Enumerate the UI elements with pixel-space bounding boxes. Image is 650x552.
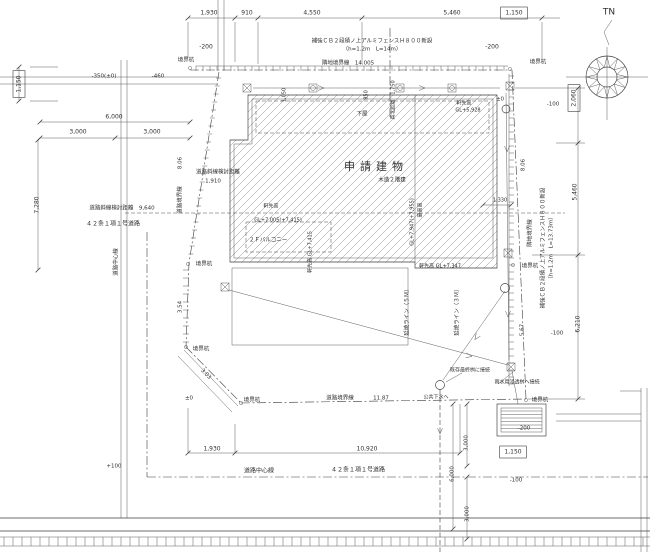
svg-text:1,150: 1,150 (16, 75, 23, 92)
first-floor-outline (232, 268, 408, 345)
svg-text:隣地境界線 14.005: 隣地境界線 14.005 (322, 59, 375, 67)
label-north-tn: TN (602, 8, 615, 18)
label-stake-bottom-right: 境界杭 (532, 396, 549, 404)
svg-text:2,060: 2,060 (571, 89, 578, 106)
svg-text:1,910: 1,910 (205, 179, 221, 185)
svg-text:3.03: 3.03 (199, 368, 212, 381)
svg-text:5,460: 5,460 (572, 183, 579, 200)
labels: TN1,9309104,5505,4601,150-200補強ＣＢ２段積ノ上アル… (13, 7, 615, 522)
label-lvl-right-100a: -100 (547, 102, 560, 108)
svg-text:既存最終桝に接続: 既存最終桝に接続 (450, 367, 490, 374)
label-lvl-bottom-minus100: -100 (510, 478, 523, 484)
svg-text:TN: TN (602, 8, 615, 18)
label-dim-right-5460: 5,460 (572, 183, 579, 200)
label-line-road-bottom: 道路境界線 (326, 394, 354, 402)
svg-text:850: 850 (364, 90, 370, 100)
svg-text:延焼ライン（５Ｍ）: 延焼ライン（５Ｍ） (403, 286, 411, 336)
svg-text:6,210: 6,210 (575, 315, 582, 332)
svg-text:10,920: 10,920 (357, 446, 378, 453)
svg-text:GL+7,947(+7,955): GL+7,947(+7,955) (410, 198, 416, 246)
label-note-setback-1910b: 1,910 (205, 179, 221, 185)
svg-text:±0: ±0 (185, 396, 194, 402)
label-note-eave-7005a: 軒先高 (263, 203, 278, 210)
svg-text:±0: ±0 (496, 97, 505, 103)
svg-text:木造２階建: 木造２階建 (378, 176, 406, 184)
label-note-road-article-bottom: ４２条１項１号道路 (331, 466, 385, 474)
svg-text:公共下水へ: 公共下水へ (423, 394, 448, 401)
svg-text:3,000: 3,000 (465, 506, 471, 522)
svg-text:（h=1.2m L=14m）: （h=1.2m L=14m） (343, 46, 402, 53)
label-lvl-top-right-200: -200 (485, 44, 499, 51)
label-stake-east-mid: 境界杭 (522, 262, 539, 270)
svg-text:-460: -460 (152, 74, 165, 80)
label-note-eave-7415-v: 軒先高 GL+7,415 (307, 231, 314, 273)
label-dim-top-4550: 4,550 (303, 10, 320, 17)
svg-text:軒先高 GL+7,347: 軒先高 GL+7,347 (419, 263, 461, 270)
label-note-rain-masu: 雨水用浸透桝へ接続 (494, 379, 539, 386)
svg-text:道路中心線: 道路中心線 (112, 248, 120, 276)
label-note-road-center-left: 道路中心線 (112, 248, 120, 276)
label-lvl-left-350: -350(±0) (92, 74, 117, 80)
label-dim-bottom-3000b: 3,000 (465, 506, 471, 522)
svg-text:真北距離 1,750: 真北距離 1,750 (390, 80, 397, 119)
label-dim-top-1150: 1,150 (501, 7, 528, 19)
label-line-adjacent-east: 隣地境界線 (526, 219, 534, 247)
label-bldg-title: 申請建物 (344, 159, 408, 173)
label-dim-north-1750: 真北距離 1,750 (390, 80, 397, 119)
svg-text:11.87: 11.87 (373, 396, 389, 402)
svg-text:補強ＣＢ２段積ノ上アルミフェンスＨ８００新設: 補強ＣＢ２段積ノ上アルミフェンスＨ８００新設 (539, 187, 547, 308)
label-note-final-masu: 既存最終桝に接続 (450, 367, 490, 374)
svg-text:5,460: 5,460 (443, 10, 460, 17)
svg-text:道路中心線: 道路中心線 (244, 467, 274, 475)
svg-text:1,330: 1,330 (493, 198, 507, 204)
label-note-balcony: ２Ｆバルコニー (249, 237, 287, 244)
svg-text:-100: -100 (510, 478, 523, 484)
label-dim-east-806: 8.06 (521, 158, 527, 171)
label-dim-top-1930: 1,930 (200, 10, 217, 17)
dimensions (17, 16, 585, 542)
label-note-road-setback-9640: 道路斜線検討距離 9,640 (89, 204, 155, 212)
svg-text:下屋: 下屋 (356, 111, 368, 118)
label-dim-bottom-1930: 1,930 (203, 446, 220, 453)
svg-text:3,000: 3,000 (464, 435, 470, 451)
svg-text:軒先高: 軒先高 (456, 100, 471, 107)
label-dim-top-5460: 5,460 (443, 10, 460, 17)
svg-text:1,050: 1,050 (282, 88, 288, 102)
svg-text:境界杭: 境界杭 (196, 260, 213, 268)
label-note-max-height-v1: 最高高 (417, 202, 424, 217)
label-dim-left-6000: 6,000 (105, 114, 122, 121)
label-dim-top-910: 910 (241, 10, 253, 17)
svg-text:延焼ライン（３Ｍ）: 延焼ライン（３Ｍ） (453, 286, 461, 336)
label-note-max-height-v2: GL+7,947(+7,955) (410, 198, 416, 246)
label-line-adjacent-top: 隣地境界線 14.005 (322, 59, 375, 67)
label-dim-bottom-6000: 6,000 (450, 466, 456, 482)
svg-text:3,000: 3,000 (69, 129, 86, 136)
svg-text:5.67: 5.67 (520, 323, 526, 336)
label-line-road-west: 道路境界線 (176, 186, 184, 214)
label-dim-small-1050: 1,050 (282, 88, 288, 102)
label-lvl-right-100b: -100 (551, 331, 564, 337)
label-dim-right-6210: 6,210 (575, 315, 582, 332)
label-stake-top-right: 境界杭 (530, 58, 547, 66)
svg-text:４２条１項１号道路: ４２条１項１号道路 (331, 466, 385, 474)
svg-text:境界杭: 境界杭 (532, 396, 549, 404)
label-lvl-bottom-200: -200 (518, 426, 531, 432)
dimension-ticks (17, 16, 581, 542)
svg-text:最高高: 最高高 (417, 202, 424, 217)
label-dim-east-567: 5.67 (520, 323, 526, 336)
label-note-fence-top-1: 補強ＣＢ２段積ノ上アルミフェンスＨ８００新設 (312, 37, 433, 45)
svg-text:6,000: 6,000 (450, 466, 456, 482)
label-note-geya: 下屋 (356, 111, 368, 118)
svg-text:境界杭: 境界杭 (244, 396, 261, 404)
svg-text:４２条１項１号道路: ４２条１項１号道路 (86, 220, 140, 228)
svg-text:-350(±0): -350(±0) (92, 74, 117, 80)
svg-text:3,000: 3,000 (143, 129, 160, 136)
label-dim-bottom-3000a: 3,000 (464, 435, 470, 451)
north-compass (566, 20, 648, 120)
label-note-road-article-left: ４２条１項１号道路 (86, 220, 140, 228)
label-lvl-corner-pm0: ±0 (185, 396, 194, 402)
svg-text:道路境界線: 道路境界線 (176, 186, 184, 214)
svg-text:隣地境界線: 隣地境界線 (526, 219, 534, 247)
svg-text:1,930: 1,930 (200, 10, 217, 17)
label-note-eave-7347: 軒先高 GL+7,347 (419, 263, 461, 270)
label-stake-west-mid: 境界杭 (196, 260, 213, 268)
svg-text:（h=1.2m L=13.73m）: （h=1.2m L=13.73m） (548, 214, 555, 281)
label-note-eave-5928a: 軒先高 (456, 100, 471, 107)
label-lvl-left-460: -460 (152, 74, 165, 80)
svg-text:-200: -200 (485, 44, 499, 51)
site-plan-drawing: TN1,9309104,5505,4601,150-200補強ＣＢ２段積ノ上アル… (0, 0, 650, 552)
label-bldg-structure: 木造２階建 (378, 176, 406, 184)
svg-text:軒先高 GL+7,415: 軒先高 GL+7,415 (307, 231, 314, 273)
label-lvl-top-left-200: -200 (199, 44, 213, 51)
label-dim-left-7280: 7,280 (34, 196, 41, 213)
svg-text:境界杭: 境界杭 (530, 58, 547, 66)
svg-text:GL+7,005(+7,415): GL+7,005(+7,415) (254, 218, 302, 224)
label-lvl-bottom-plus100: +100 (106, 464, 122, 470)
label-dim-left-3000a: 3,000 (69, 129, 86, 136)
label-stake-west-low: 境界杭 (193, 345, 210, 353)
label-note-eave-7005b: GL+7,005(+7,415) (254, 218, 302, 224)
svg-text:+100: +100 (106, 464, 122, 470)
label-note-fence-top-2: （h=1.2m L=14m） (343, 46, 402, 53)
svg-text:8.06: 8.06 (178, 156, 184, 169)
svg-text:-200: -200 (199, 44, 213, 51)
label-note-road-center-bottom: 道路中心線 (244, 467, 274, 475)
svg-text:7,280: 7,280 (34, 196, 41, 213)
svg-text:1,150: 1,150 (504, 449, 521, 456)
north-leader (604, 20, 612, 45)
label-dim-west-806: 8.06 (178, 156, 184, 169)
svg-text:道路斜線検討距離: 道路斜線検討距離 (196, 168, 241, 176)
svg-text:軒先高: 軒先高 (263, 203, 278, 210)
label-dim-bottom-10920: 10,920 (357, 446, 378, 453)
svg-text:道路境界線: 道路境界線 (326, 394, 354, 402)
svg-text:-100: -100 (551, 331, 564, 337)
svg-text:8.06: 8.06 (521, 158, 527, 171)
svg-text:境界杭: 境界杭 (178, 56, 195, 64)
label-note-sewer: 公共下水へ (423, 394, 448, 401)
svg-text:-200: -200 (518, 426, 531, 432)
label-note-fence-east-2: （h=1.2m L=13.73m） (548, 214, 555, 281)
svg-text:境界杭: 境界杭 (522, 262, 539, 270)
label-note-fire-5m: 延焼ライン（５Ｍ） (403, 286, 411, 336)
svg-text:1,150: 1,150 (505, 10, 522, 17)
label-dim-bottom-1150: 1,150 (500, 446, 527, 458)
label-lvl-ne-pm0: ±0 (496, 97, 505, 103)
svg-text:3.54: 3.54 (178, 300, 184, 313)
label-dim-corner-303: 3.03 (199, 368, 212, 381)
label-note-setback-1910a: 道路斜線検討距離 (196, 168, 241, 176)
svg-text:申請建物: 申請建物 (344, 159, 408, 173)
svg-text:GL+5,928: GL+5,928 (455, 108, 480, 114)
svg-text:-100: -100 (547, 102, 560, 108)
svg-text:1,930: 1,930 (203, 446, 220, 453)
label-note-eave-5928b: GL+5,928 (455, 108, 480, 114)
label-dim-1330: 1,330 (493, 198, 507, 204)
svg-text:補強ＣＢ２段積ノ上アルミフェンスＨ８００新設: 補強ＣＢ２段積ノ上アルミフェンスＨ８００新設 (312, 37, 433, 45)
svg-text:道路斜線検討距離 9,640: 道路斜線検討距離 9,640 (89, 204, 155, 212)
svg-text:910: 910 (241, 10, 253, 17)
svg-text:雨水用浸透桝へ接続: 雨水用浸透桝へ接続 (494, 379, 539, 386)
label-dim-small-850: 850 (364, 90, 370, 100)
svg-text:２Ｆバルコニー: ２Ｆバルコニー (249, 237, 287, 244)
svg-text:4,550: 4,550 (303, 10, 320, 17)
label-stake-bottom-left: 境界杭 (244, 396, 261, 404)
label-stake-top-left: 境界杭 (178, 56, 195, 64)
site-plan-sheet: TN1,9309104,5505,4601,150-200補強ＣＢ２段積ノ上アル… (0, 0, 650, 552)
label-dim-west-354: 3.54 (178, 300, 184, 313)
label-dim-bottom-1187: 11.87 (373, 396, 389, 402)
label-note-fire-3m: 延焼ライン（３Ｍ） (453, 286, 461, 336)
label-note-fence-east-1: 補強ＣＢ２段積ノ上アルミフェンスＨ８００新設 (539, 187, 547, 308)
label-dim-left-3000b: 3,000 (143, 129, 160, 136)
svg-text:6,000: 6,000 (105, 114, 122, 121)
svg-text:境界杭: 境界杭 (193, 345, 210, 353)
